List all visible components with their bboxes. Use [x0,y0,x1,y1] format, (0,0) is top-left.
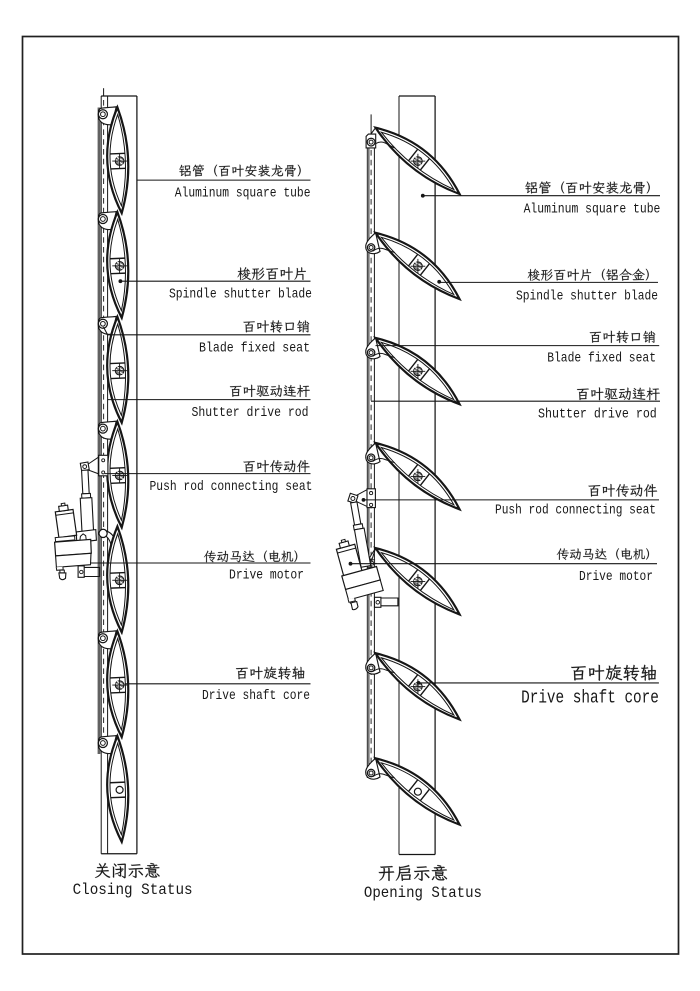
svg-text:Shutter drive rod: Shutter drive rod [192,405,309,421]
svg-text:Blade fixed seat: Blade fixed seat [547,350,656,366]
svg-text:Aluminum square tube: Aluminum square tube [524,201,661,217]
svg-text:Shutter drive rod: Shutter drive rod [538,406,657,422]
svg-text:Aluminum square tube: Aluminum square tube [175,185,311,201]
svg-text:Spindle shutter blade: Spindle shutter blade [169,287,312,303]
svg-text:Push rod connecting seat: Push rod connecting seat [150,479,313,495]
svg-text:Drive motor: Drive motor [229,567,304,583]
svg-text:Drive shaft core: Drive shaft core [202,688,310,704]
svg-text:Spindle shutter blade: Spindle shutter blade [516,288,658,304]
svg-text:Drive motor: Drive motor [579,569,653,585]
svg-text:Drive shaft core: Drive shaft core [521,689,659,709]
svg-text:Push rod connecting seat: Push rod connecting seat [495,503,656,519]
svg-text:Opening Status: Opening Status [364,884,482,902]
svg-text:Blade fixed seat: Blade fixed seat [199,341,310,357]
svg-text:Closing Status: Closing Status [73,881,193,899]
